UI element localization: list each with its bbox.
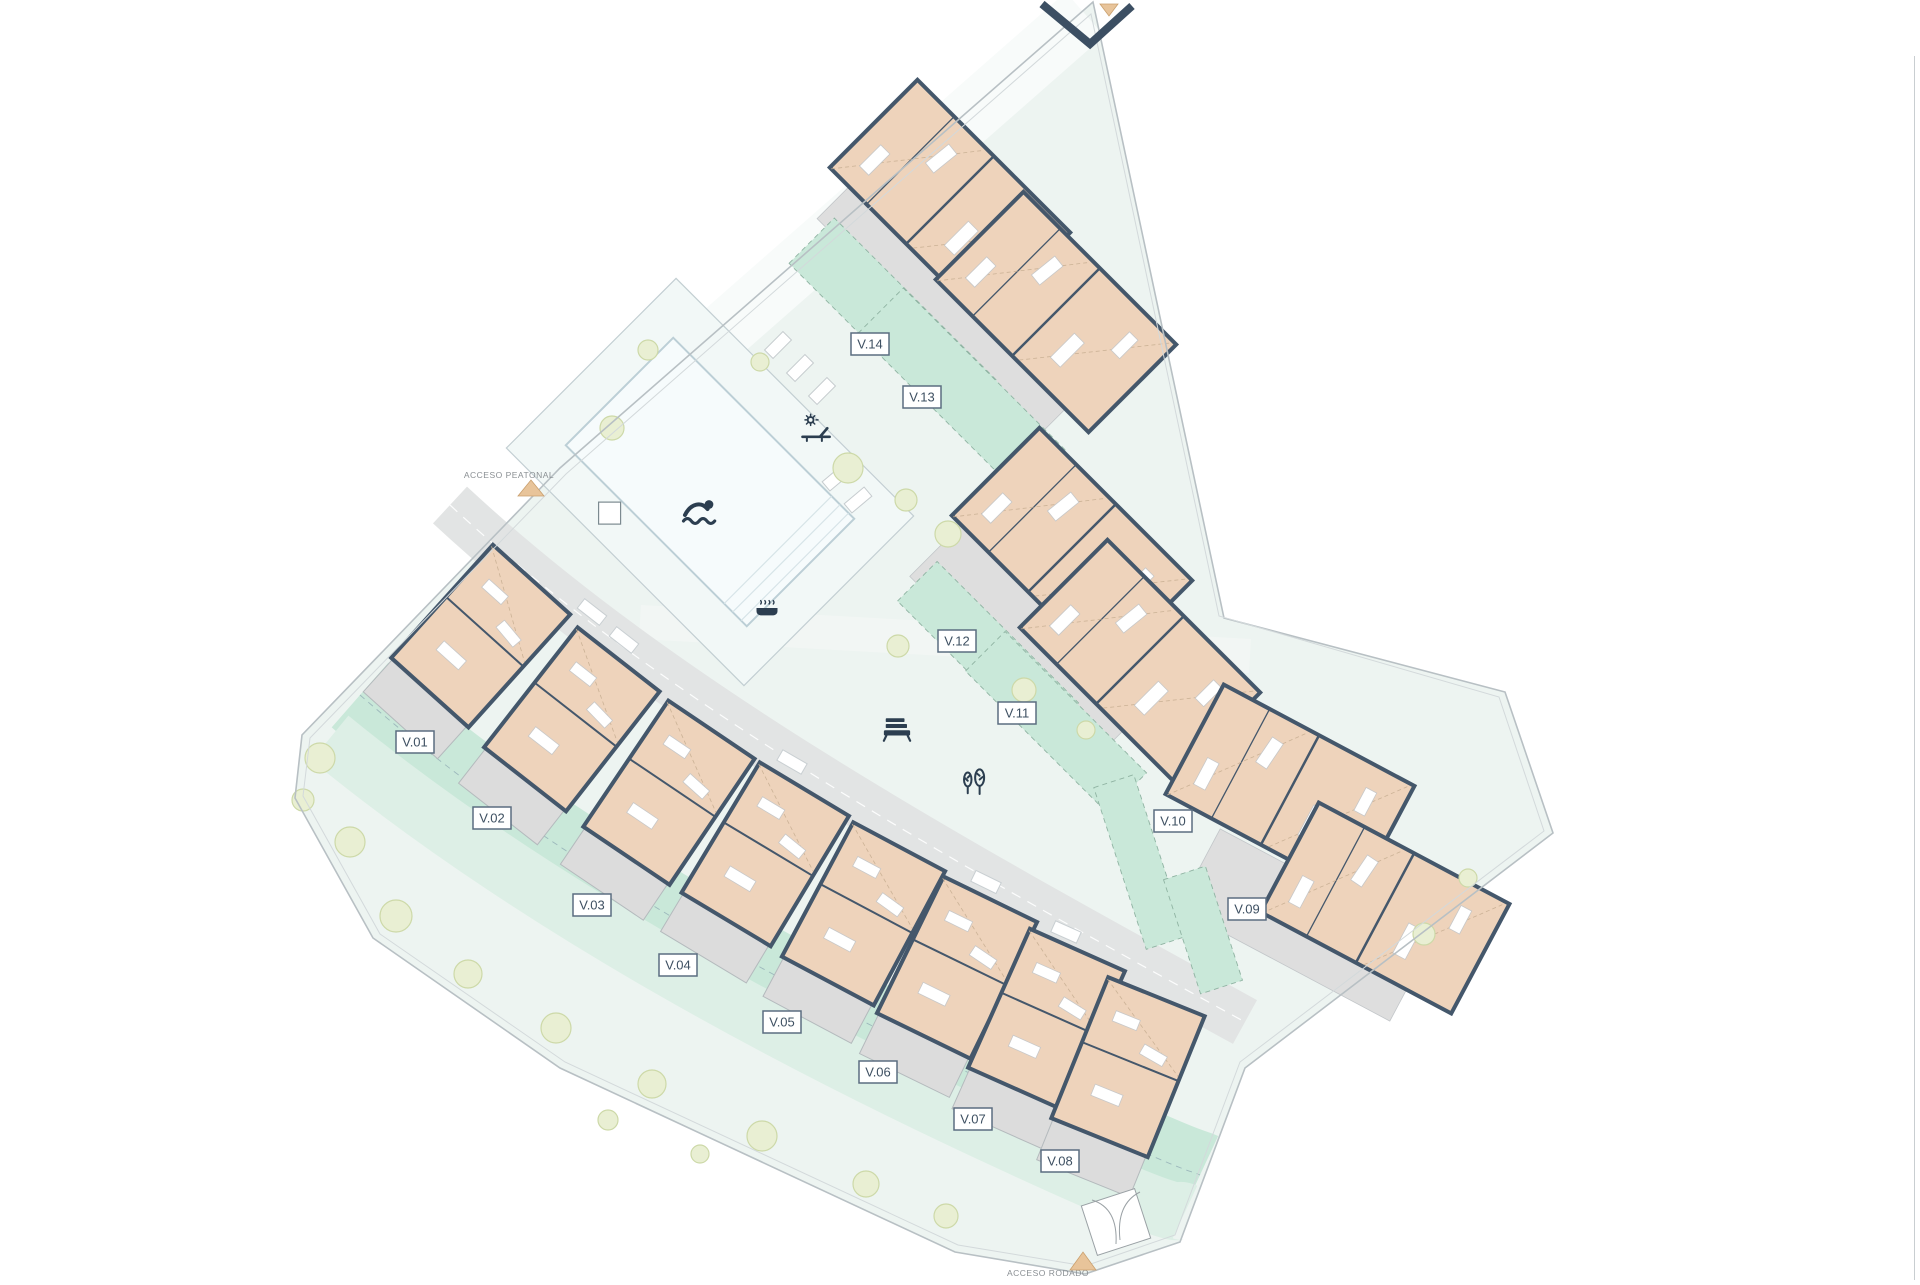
plot-label-v13[interactable]: V.13 [903, 386, 941, 408]
plot-label-v07[interactable]: V.07 [954, 1108, 992, 1130]
plot-label-v14[interactable]: V.14 [851, 333, 889, 355]
plan-sheet: { "sheet": { "code": "V07" }, "panel": {… [0, 0, 1920, 1280]
svg-text:V.10: V.10 [1160, 814, 1186, 829]
svg-text:V.04: V.04 [665, 958, 691, 973]
svg-text:V.12: V.12 [944, 634, 970, 649]
svg-text:V.06: V.06 [865, 1065, 891, 1080]
site-plan: ACCESO PEATONAL ACCESO RODADO V.01 V.02 … [0, 0, 1920, 1280]
access-peatonal-label: ACCESO PEATONAL [464, 470, 554, 480]
plot-label-v06[interactable]: V.06 [859, 1061, 897, 1083]
plot-label-v03[interactable]: V.03 [573, 894, 611, 916]
svg-text:V.14: V.14 [857, 337, 883, 352]
svg-text:V.08: V.08 [1047, 1154, 1073, 1169]
plot-label-v11[interactable]: V.11 [998, 702, 1036, 724]
plot-label-v04[interactable]: V.04 [659, 954, 697, 976]
plot-label-v08[interactable]: V.08 [1041, 1150, 1079, 1172]
svg-text:V.01: V.01 [402, 735, 428, 750]
svg-text:V.13: V.13 [909, 390, 935, 405]
panel-border [1914, 56, 1915, 1280]
svg-text:V.03: V.03 [579, 898, 605, 913]
plot-label-v02[interactable]: V.02 [473, 807, 511, 829]
svg-text:V.02: V.02 [479, 811, 505, 826]
plot-label-v12[interactable]: V.12 [938, 630, 976, 652]
svg-text:V.07: V.07 [960, 1112, 986, 1127]
plot-label-v05[interactable]: V.05 [763, 1011, 801, 1033]
svg-text:V.11: V.11 [1005, 706, 1030, 721]
plot-label-v10[interactable]: V.10 [1154, 810, 1192, 832]
plot-label-v09[interactable]: V.09 [1228, 898, 1266, 920]
svg-text:V.05: V.05 [769, 1015, 795, 1030]
info-panel: URBANIZACIÓN Pisc [1660, 0, 1920, 1280]
plot-label-v01[interactable]: V.01 [396, 731, 434, 753]
svg-text:V.09: V.09 [1234, 902, 1260, 917]
